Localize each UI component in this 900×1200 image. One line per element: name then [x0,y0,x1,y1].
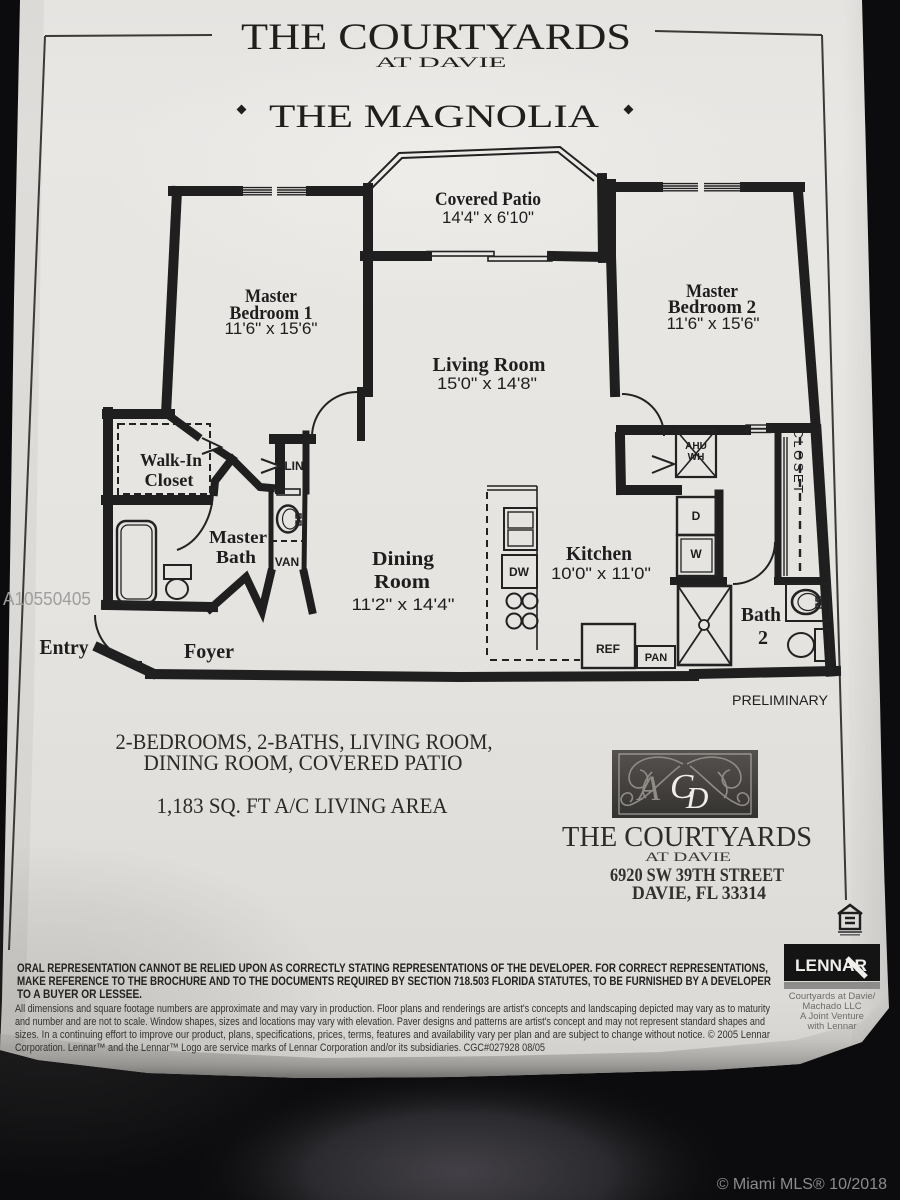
svg-text:Covered Patio: Covered Patio [435,189,541,210]
svg-text:TO A BUYER OR LESSEE.: TO A BUYER OR LESSEE. [17,987,142,1001]
svg-text:Master: Master [209,527,267,547]
svg-text:DAVIE, FL 33314: DAVIE, FL 33314 [632,883,766,904]
svg-text:VAN: VAN [275,555,299,569]
svg-text:Corporation. Lennar™ and the: Corporation. Lennar™ and the Lennar™ Log… [15,1042,545,1054]
svg-text:15'0" x 14'8": 15'0" x 14'8" [437,374,537,393]
svg-text:AT DAVIE: AT DAVIE [645,850,732,864]
svg-text:© Miami MLS® 10/2018: © Miami MLS® 10/2018 [717,1176,887,1193]
svg-text:D: D [685,780,708,815]
svg-text:Living Room: Living Room [433,354,546,376]
svg-text:11'6" x 15'6": 11'6" x 15'6" [667,314,760,333]
svg-text:THE COURTYARDS: THE COURTYARDS [241,17,631,58]
svg-text:ORAL REPRESENTATION CANNOT BE: ORAL REPRESENTATION CANNOT BE RELIED UPO… [17,961,768,975]
svg-text:REF: REF [596,642,620,656]
svg-text:WH: WH [688,452,705,463]
svg-text:Entry: Entry [40,635,89,659]
svg-text:Kitchen: Kitchen [566,543,632,565]
svg-text:Closet: Closet [145,470,194,490]
svg-text:PAN: PAN [645,652,667,664]
svg-text:THE COURTYARDS: THE COURTYARDS [562,822,812,853]
svg-text:THE MAGNOLIA: THE MAGNOLIA [269,99,599,135]
svg-text:11'6" x 15'6": 11'6" x 15'6" [225,319,318,338]
svg-text:sizes. In a continuing effort: sizes. In a continuing effort to improve… [15,1029,770,1041]
svg-text:A10550405: A10550405 [3,589,91,609]
svg-text:10'0" x 11'0": 10'0" x 11'0" [551,564,651,583]
svg-text:AHU: AHU [685,441,707,452]
svg-text:1,183 SQ. FT A/C LIVING AREA: 1,183 SQ. FT A/C LIVING AREA [157,793,448,818]
svg-text:Bath: Bath [216,547,256,567]
svg-text:PRELIMINARY: PRELIMINARY [732,692,829,708]
svg-text:AT DAVIE: AT DAVIE [376,55,507,71]
svg-text:Foyer: Foyer [184,639,234,663]
svg-text:14'4" x 6'10": 14'4" x 6'10" [442,208,534,227]
svg-text:DW: DW [509,565,530,579]
svg-text:Dining: Dining [372,548,434,570]
svg-text:with Lennar: with Lennar [806,1021,856,1032]
svg-text:2: 2 [758,627,768,649]
svg-text:Bath: Bath [741,604,781,626]
svg-text:D: D [692,509,701,523]
svg-text:CLOSET: CLOSET [791,428,806,495]
svg-text:W: W [690,547,702,561]
svg-text:11'2" x 14'4": 11'2" x 14'4" [352,595,455,614]
svg-text:MAKE REFERENCE TO THE BROCHURE: MAKE REFERENCE TO THE BROCHURE AND TO TH… [17,974,771,988]
svg-text:A: A [636,768,661,808]
svg-text:LIN: LIN [284,459,303,473]
svg-text:All dimensions and square foot: All dimensions and square footage number… [15,1003,770,1015]
svg-text:Room: Room [374,571,430,593]
svg-text:Walk-In: Walk-In [140,450,202,470]
svg-text:DINING ROOM, COVERED PATIO: DINING ROOM, COVERED PATIO [144,750,463,775]
svg-text:and number and are not to scal: and number and are not to scale. Window … [15,1016,765,1028]
